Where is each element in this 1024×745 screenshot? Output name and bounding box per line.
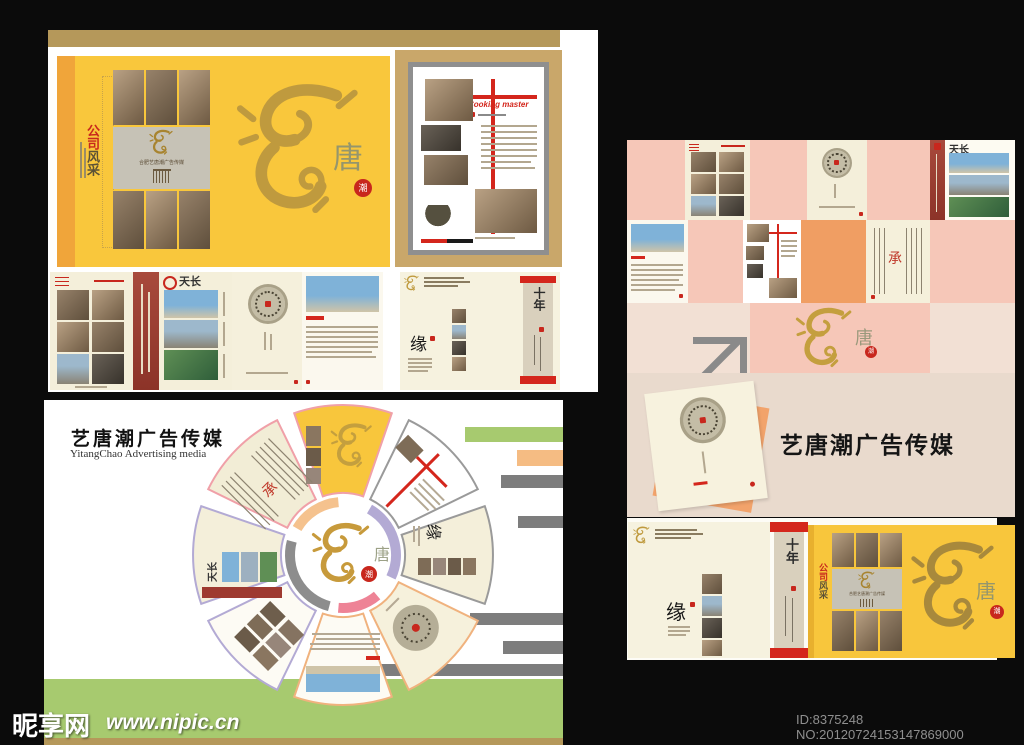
- tagline-dark-part: 风采: [818, 581, 828, 599]
- corner-seal: [750, 481, 756, 487]
- page-contact-yuan: 缘 十年: [400, 272, 560, 390]
- tile-orange: [801, 220, 866, 303]
- page-tianchang: 天长: [159, 272, 232, 390]
- photo-river: [949, 197, 1009, 217]
- photo: [719, 174, 744, 194]
- photo-chef: [425, 79, 473, 121]
- cover-spine-strip: [808, 525, 814, 658]
- vertical-caption: [540, 337, 541, 371]
- strip-seal: [934, 143, 941, 150]
- text-line: [408, 362, 432, 364]
- text-line: [481, 155, 537, 157]
- text-line: [631, 289, 675, 291]
- dragon-logo-icon: [404, 275, 420, 291]
- text-line: [481, 143, 537, 145]
- handwriting-line: [478, 114, 506, 116]
- arrow-icon-side: [740, 344, 747, 374]
- corner-seal: [679, 294, 683, 298]
- yuan-character: 缘: [410, 330, 427, 355]
- brand-title-large: 艺唐潮广告传媒: [780, 426, 955, 460]
- photo: [702, 574, 722, 594]
- photo: [452, 309, 466, 323]
- cover-dragon-art: 唐 潮: [230, 75, 390, 250]
- panel-page-grid: 天长: [627, 140, 1015, 672]
- photo-landmark: [164, 290, 218, 318]
- text-line: [481, 131, 537, 133]
- photo: [92, 290, 124, 320]
- text-line: [408, 366, 432, 368]
- text-line: [306, 356, 376, 358]
- panel-brochure-spread-sheet: 公司风采 合肥艺唐潮广告传媒 唐 潮: [48, 30, 598, 392]
- chao-seal: 潮: [865, 346, 877, 358]
- vertical-text-line: [879, 228, 880, 294]
- vertical-caption: [834, 184, 836, 198]
- mini-seal: [539, 327, 544, 332]
- tagline-red-part: 公司: [818, 563, 828, 581]
- chao-seal: 潮: [990, 605, 1004, 619]
- maroon-text-strip: [133, 272, 159, 390]
- harp-icon-strings: [860, 599, 874, 607]
- photo: [452, 325, 466, 339]
- corner-seal: [859, 212, 863, 216]
- text-line: [631, 284, 683, 286]
- text-line: [481, 137, 537, 139]
- photo: [832, 533, 854, 567]
- center-logo-text: 合肥艺唐潮广告传媒: [832, 591, 902, 597]
- vertical-caption: [264, 332, 266, 350]
- contact-line: [424, 277, 464, 279]
- photo-street: [164, 320, 218, 348]
- vertical-text-line: [141, 284, 143, 374]
- vertical-text-line: [874, 228, 875, 294]
- banner-paper: 十年: [774, 532, 804, 648]
- photo: [856, 533, 878, 567]
- text-line: [781, 255, 795, 257]
- text-line: [631, 269, 683, 271]
- mini-seal: [690, 602, 695, 607]
- cover-spread: 公司风采 合肥艺唐潮广告传媒 唐 潮: [57, 56, 390, 267]
- text-line: [668, 626, 690, 628]
- photo-waterfront: [306, 276, 379, 312]
- page-waterfront: [302, 272, 383, 390]
- photo: [691, 196, 716, 216]
- photo: [702, 618, 722, 638]
- dragon-artwork-icon: [795, 306, 857, 368]
- banner-red-bar-top: [520, 276, 556, 283]
- photo-street: [949, 175, 1009, 195]
- photo-waterfront: [631, 224, 684, 252]
- photo: [691, 174, 716, 194]
- contact-line: [655, 537, 691, 539]
- vertical-text-line: [148, 292, 150, 372]
- harp-icon-strings: [153, 171, 171, 183]
- photo: [856, 611, 878, 651]
- tile-page-buildings: [685, 140, 750, 220]
- design-preview-canvas: 公司风采 合肥艺唐潮广告传媒 唐 潮: [0, 0, 1024, 745]
- vertical-caption: [223, 292, 225, 316]
- text-line: [481, 149, 537, 151]
- tile-pink: [750, 140, 807, 220]
- yuan-character: 缘: [666, 596, 686, 625]
- yellow-cover-spread-2: 公司风采 合肥艺唐潮广告传媒 唐 潮: [808, 525, 1015, 658]
- gray-bar: [501, 475, 563, 488]
- text-line: [668, 630, 690, 632]
- red-title-line: [94, 280, 124, 282]
- text-line: [408, 370, 428, 372]
- photo: [702, 596, 722, 616]
- pagoda-icon: [689, 143, 699, 151]
- text-line: [481, 161, 531, 163]
- cheng-character: 承: [888, 248, 902, 268]
- contact-line: [424, 285, 458, 287]
- cover-center-granite-block: 合肥艺唐潮广告传媒: [832, 569, 902, 609]
- tile-page-cooking: [743, 220, 801, 303]
- text-line: [668, 634, 686, 636]
- text-line: [631, 264, 683, 266]
- tilted-paper-cream: [644, 381, 768, 512]
- cover-spine-strip: [57, 56, 75, 267]
- photo: [146, 191, 177, 249]
- mini-seal: [791, 586, 796, 591]
- contact-line: [655, 533, 703, 535]
- banner-red-bar-top: [770, 522, 808, 532]
- photo-interior: [424, 155, 468, 185]
- page-contact-yuan-2: 缘: [628, 522, 770, 658]
- contact-line: [424, 281, 470, 283]
- text-line: [306, 341, 378, 343]
- banner-red-bar-bottom: [520, 376, 556, 384]
- tile-pink: [930, 220, 1015, 303]
- cover-vertical-tagline: 公司风采: [818, 563, 827, 623]
- tile-pink: [867, 140, 930, 220]
- tagline-dark-part: 风采: [85, 150, 100, 176]
- text-line: [781, 240, 797, 242]
- photo: [179, 70, 210, 125]
- photo: [719, 152, 744, 172]
- page-calligraphy-circle: [232, 272, 302, 390]
- cover-micro-vtext: [80, 142, 82, 178]
- text-line: [306, 351, 372, 353]
- brand-title-en: YitangChao Advertising media: [70, 448, 206, 460]
- maroon-strip: [930, 140, 945, 220]
- tang-character: 唐: [976, 575, 996, 604]
- corner-seal: [294, 380, 298, 384]
- tree-silhouette: [421, 205, 455, 229]
- caption-line: [246, 372, 288, 374]
- red-tag: [631, 256, 645, 259]
- dragon-logo-icon: [633, 526, 651, 544]
- cooking-page: Cooking master: [413, 67, 544, 250]
- watermark-site-name: 昵享网: [12, 706, 90, 743]
- red-title-line: [721, 145, 745, 147]
- tianchang-title: 天长: [179, 273, 201, 289]
- black-footer-bar: [447, 239, 473, 243]
- red-dash: [693, 481, 707, 486]
- caption-line: [75, 386, 107, 388]
- red-footer-bar: [421, 239, 447, 243]
- tile-page-text: 承: [866, 220, 930, 303]
- photo-interior: [746, 246, 764, 260]
- dragon-logo-icon: [149, 129, 175, 155]
- shinian-banner: 十年: [520, 276, 556, 384]
- red-ring-logo: [163, 276, 177, 290]
- photo: [832, 611, 854, 651]
- cover-dragon-art: 唐 潮: [908, 531, 1013, 656]
- photo: [92, 322, 124, 352]
- tagline-red-part: 公司: [85, 124, 100, 150]
- photo-storefront: [421, 125, 461, 151]
- photo-landmark: [949, 153, 1009, 173]
- text-line: [306, 326, 378, 328]
- tile-pink: [627, 140, 685, 220]
- text-line: [306, 336, 378, 338]
- photo: [179, 191, 210, 249]
- text-line: [481, 125, 537, 127]
- vertical-caption: [223, 354, 225, 378]
- text-line: [781, 250, 797, 252]
- gray-bar: [518, 516, 563, 528]
- vertical-caption: [223, 322, 225, 346]
- tang-character: 唐: [333, 133, 363, 177]
- contact-line: [655, 529, 697, 531]
- stone-center-seal: [699, 417, 706, 424]
- vertical-text-line: [916, 228, 917, 294]
- shinian-banner-2: 十年: [770, 522, 808, 658]
- cover-vertical-tagline: 公司风采: [86, 124, 99, 224]
- photo: [880, 533, 902, 567]
- vertical-text-line: [906, 228, 907, 294]
- tile-cream: [627, 303, 690, 373]
- text-line: [408, 358, 432, 360]
- stone-center-seal: [265, 301, 271, 307]
- vertical-caption: [785, 596, 786, 636]
- caption-line: [475, 237, 515, 239]
- photo: [691, 152, 716, 172]
- dragon-logo-icon: [858, 571, 876, 589]
- cooking-page-mat: Cooking master: [395, 50, 562, 267]
- vertical-caption: [534, 335, 535, 365]
- text-line: [306, 346, 378, 348]
- cooking-title: Cooking master: [468, 100, 528, 109]
- photo-river: [164, 350, 218, 380]
- orange-bar: [517, 450, 563, 466]
- wedge-text: [208, 420, 316, 528]
- text-line: [306, 331, 378, 333]
- mini-seal: [430, 336, 435, 341]
- banner-red-bar-bottom: [770, 648, 808, 658]
- chao-seal: 潮: [354, 179, 372, 197]
- vertical-text-line: [921, 228, 922, 294]
- tang-character: 唐: [374, 546, 390, 564]
- vertical-caption: [270, 334, 272, 350]
- tan-footer-strip: [44, 738, 563, 745]
- photo: [113, 191, 144, 249]
- shinian-title: 十年: [782, 538, 801, 584]
- vertical-text-line: [884, 228, 885, 294]
- photo: [92, 354, 124, 384]
- photo-dining-table: [475, 189, 537, 233]
- tile-pink: [688, 220, 743, 303]
- photo-chef: [747, 224, 769, 242]
- caption-line: [819, 206, 855, 208]
- page-buildings: [50, 272, 133, 390]
- gray-frame: Cooking master: [408, 62, 549, 255]
- photo-dining-table: [769, 278, 797, 298]
- gray-bar: [503, 641, 563, 654]
- vertical-caption: [702, 451, 707, 473]
- fan-wheel: 缘 天长 承: [188, 400, 498, 710]
- corner-seal: [871, 295, 875, 299]
- vertical-caption: [792, 598, 793, 642]
- photo: [452, 341, 466, 355]
- photo: [452, 357, 466, 371]
- cover-center-granite-block: 合肥艺唐潮广告传媒: [113, 127, 210, 189]
- vertical-text-line: [911, 228, 912, 294]
- photo: [57, 322, 89, 352]
- photo: [57, 290, 89, 320]
- photo: [719, 196, 744, 216]
- wedge-cooking: [370, 420, 478, 528]
- chao-seal-character: 潮: [365, 569, 373, 579]
- tianchang-title: 天长: [206, 561, 219, 582]
- pagoda-icon: [55, 276, 69, 286]
- beige-band: 艺唐潮广告传媒: [627, 373, 1015, 517]
- banner-paper: 十年: [523, 283, 553, 376]
- text-line: [631, 274, 683, 276]
- tile-cream: [930, 303, 1015, 373]
- tile-page-waterfront: [627, 220, 688, 303]
- red-tag: [306, 316, 324, 320]
- photo: [113, 70, 144, 125]
- wedge-yuan: [402, 506, 493, 604]
- corner-seal: [306, 380, 310, 384]
- tile-page-tianchang: 天长: [930, 140, 1015, 220]
- panel-fan-layout-sheet: 艺唐潮广告传媒 YitangChao Advertising media: [44, 400, 563, 745]
- text-line: [631, 279, 679, 281]
- tile-page-stone: [807, 140, 867, 220]
- image-id-text: ID:8375248 NO:20120724153147869000: [796, 712, 1024, 742]
- yuan-character: 缘: [424, 524, 442, 540]
- photo-tree: [747, 264, 763, 278]
- stone-center-seal: [834, 160, 839, 165]
- shinian-title: 十年: [531, 287, 548, 327]
- photo: [702, 640, 722, 656]
- text-line: [481, 167, 535, 169]
- center-logo-text: 合肥艺唐潮广告传媒: [113, 159, 210, 166]
- photo: [57, 354, 89, 384]
- tan-header-bar: [48, 30, 560, 47]
- photo: [880, 611, 902, 651]
- text-line: [781, 245, 797, 247]
- vertical-text-line: [936, 154, 937, 212]
- watermark-site-url: www.nipic.cn: [106, 711, 239, 735]
- photo: [146, 70, 177, 125]
